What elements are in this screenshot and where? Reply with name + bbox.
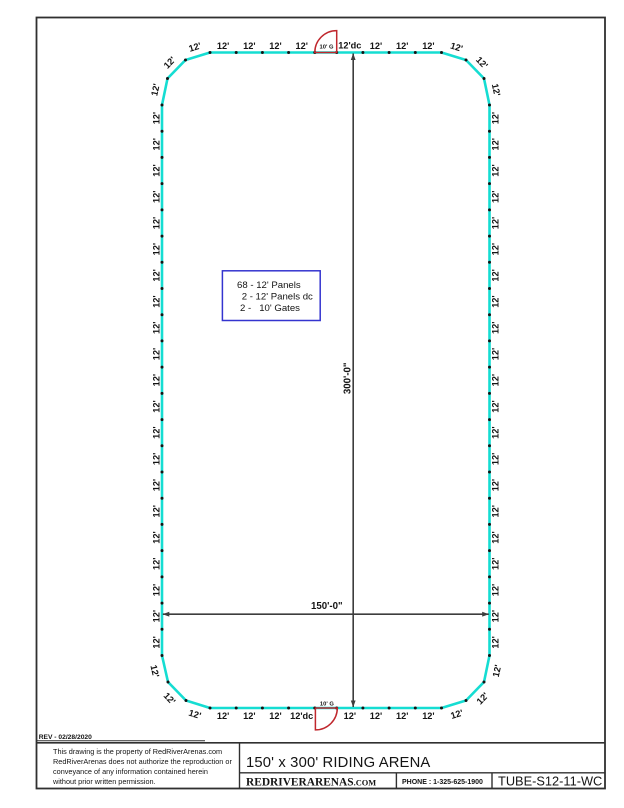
svg-text:12': 12' (152, 400, 162, 412)
svg-text:12': 12' (152, 636, 162, 648)
svg-text:12': 12' (152, 531, 162, 543)
svg-text:12': 12' (152, 558, 162, 570)
svg-text:68 - 12' Panels: 68 - 12' Panels (237, 280, 301, 291)
svg-text:12': 12' (491, 348, 501, 360)
svg-text:12': 12' (217, 711, 229, 721)
svg-text:12': 12' (152, 374, 162, 386)
svg-text:12': 12' (152, 164, 162, 176)
svg-text:12': 12' (491, 610, 501, 622)
svg-text:12': 12' (370, 711, 382, 721)
svg-text:12': 12' (491, 164, 501, 176)
svg-text:12': 12' (491, 322, 501, 334)
svg-text:conveyance of any information: conveyance of any information contained … (53, 767, 208, 776)
svg-text:TUBE-S12-11-WC: TUBE-S12-11-WC (498, 774, 602, 789)
svg-text:12'dc: 12'dc (290, 711, 313, 721)
svg-text:10' G: 10' G (320, 701, 334, 707)
svg-text:12': 12' (152, 191, 162, 203)
svg-text:2 - 12' Panels dc: 2 - 12' Panels dc (242, 291, 313, 302)
svg-text:12': 12' (152, 453, 162, 465)
svg-text:PHONE : 1-325-625-1900: PHONE : 1-325-625-1900 (402, 779, 483, 786)
svg-text:12': 12' (152, 348, 162, 360)
svg-text:12': 12' (344, 711, 356, 721)
svg-text:12': 12' (152, 295, 162, 307)
svg-text:12': 12' (491, 636, 501, 648)
svg-text:12': 12' (491, 112, 501, 124)
svg-text:12': 12' (295, 41, 307, 51)
svg-text:12': 12' (152, 610, 162, 622)
svg-text:This drawing is the property o: This drawing is the property of RedRiver… (53, 747, 222, 756)
svg-text:12': 12' (491, 295, 501, 307)
svg-text:RedRiverArenas does not author: RedRiverArenas does not authorize the re… (53, 757, 232, 766)
svg-text:2 - 10' Gates: 2 - 10' Gates (240, 303, 300, 314)
svg-text:12': 12' (370, 41, 382, 51)
svg-text:12': 12' (152, 584, 162, 596)
svg-text:12': 12' (396, 41, 408, 51)
svg-text:12': 12' (491, 453, 501, 465)
svg-text:12': 12' (152, 426, 162, 438)
svg-text:12': 12' (491, 426, 501, 438)
svg-text:12': 12' (152, 505, 162, 517)
svg-text:12': 12' (491, 558, 501, 570)
svg-text:12': 12' (491, 191, 501, 203)
svg-text:12': 12' (152, 269, 162, 281)
svg-text:12': 12' (152, 217, 162, 229)
svg-text:12': 12' (491, 269, 501, 281)
svg-text:12': 12' (422, 41, 434, 51)
svg-text:12': 12' (269, 41, 281, 51)
svg-text:12': 12' (491, 531, 501, 543)
svg-text:12'dc: 12'dc (338, 41, 361, 51)
svg-text:12': 12' (217, 41, 229, 51)
svg-text:150'-0": 150'-0" (311, 601, 343, 612)
svg-text:12': 12' (491, 505, 501, 517)
svg-text:REV - 02/28/2020: REV - 02/28/2020 (39, 734, 92, 741)
svg-text:12': 12' (243, 41, 255, 51)
svg-text:12': 12' (491, 374, 501, 386)
svg-text:REDRIVERARENAS.COM: REDRIVERARENAS.COM (246, 777, 376, 789)
svg-text:12': 12' (152, 479, 162, 491)
svg-text:12': 12' (491, 584, 501, 596)
svg-text:12': 12' (152, 322, 162, 334)
svg-text:12': 12' (152, 138, 162, 150)
svg-text:12': 12' (152, 112, 162, 124)
svg-text:150' x 300' RIDING ARENA: 150' x 300' RIDING ARENA (246, 755, 430, 771)
svg-text:without prior written permissi: without prior written permission. (52, 777, 156, 786)
svg-text:12': 12' (269, 711, 281, 721)
svg-text:12': 12' (491, 479, 501, 491)
svg-text:12': 12' (152, 243, 162, 255)
svg-text:12': 12' (491, 217, 501, 229)
svg-text:12': 12' (491, 138, 501, 150)
svg-text:12': 12' (422, 711, 434, 721)
svg-text:12': 12' (491, 400, 501, 412)
svg-text:12': 12' (396, 711, 408, 721)
svg-text:300'-0": 300'-0" (343, 362, 354, 394)
svg-text:12': 12' (243, 711, 255, 721)
svg-text:10' G: 10' G (320, 45, 334, 51)
svg-text:12': 12' (491, 243, 501, 255)
